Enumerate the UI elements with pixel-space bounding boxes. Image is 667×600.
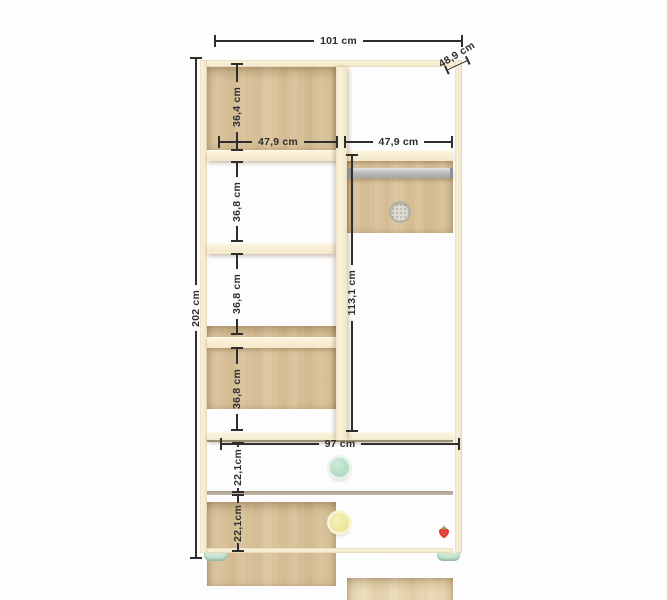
dim-tick [458,438,460,450]
shelf-middle [207,243,336,254]
hanging-rail [348,168,453,178]
drawer-knob-bottom [330,513,349,532]
dim-line [304,141,336,143]
dim-drawer-width: 97 cm [220,438,460,450]
compartment-shelf-2 [207,502,336,586]
dim-line [195,59,197,285]
carcass-right-edge [455,60,462,553]
dim-overall-width: 101 cm [214,35,463,47]
dim-line [424,141,451,143]
dim-left-compartment-width: 47,9 cm [218,136,338,148]
dim-tick [231,333,243,335]
dim-label-top-compartment: 36,4 cm [232,82,243,132]
dim-line [236,226,238,240]
dim-label-top-drawer: 22,1cm [233,447,244,488]
dim-line [236,65,238,82]
dim-line [361,443,458,445]
dim-line [236,349,238,364]
dim-tick [232,491,244,493]
dim-label-shelf-spacing-1: 36,8 cm [232,177,243,227]
dim-hanging-height: 113,1 cm [346,154,358,432]
dim-line [195,331,197,557]
wardrobe-dimension-diagram: 101 cm 48,9 cm 202 cm 36,4 cm 47,9 cm 47… [0,0,667,600]
dim-line [236,414,238,429]
dim-line [236,163,238,177]
dim-tick [465,56,471,65]
shelf-lower [207,337,336,348]
dim-line [236,319,238,333]
dim-tick [346,430,358,432]
dim-bottom-drawer-height: 22,1cm [232,494,244,552]
dim-label-left-compartment: 47,9 cm [252,137,304,148]
shelf-top [207,150,453,161]
dim-line [236,255,238,269]
dim-line [363,40,461,42]
dim-tick [231,429,243,431]
dim-label-overall-width: 101 cm [314,36,363,47]
dim-tick [232,550,244,552]
rail-end-cap-right [450,168,453,178]
dim-shelf-spacing-3: 36,8 cm [231,347,243,431]
dim-overall-height: 202 cm [190,57,202,559]
dim-top-drawer-height: 22,1cm [232,442,244,493]
dim-label-hanging-height: 113,1 cm [347,265,358,320]
dim-label-shelf-spacing-2: 36,8 cm [232,269,243,319]
dim-label-overall-height: 202 cm [191,285,202,332]
dim-shelf-spacing-2: 36,8 cm [231,253,243,335]
dim-label-right-compartment: 47,9 cm [373,137,425,148]
dim-tick [190,557,202,559]
dim-tick [336,136,338,148]
dim-line [351,156,353,265]
dim-label-bottom-drawer: 22,1cm [233,503,244,544]
furniture-foot-right [437,553,460,561]
dim-right-compartment-width: 47,9 cm [344,136,453,148]
dim-label-shelf-spacing-3: 36,8 cm [232,364,243,414]
dim-line [237,543,239,550]
dim-tick [231,240,243,242]
hanging-compartment [347,578,453,600]
dim-line [351,321,353,430]
dim-tick [451,136,453,148]
dim-line [220,141,252,143]
dim-tick [231,149,243,151]
dim-line [216,40,314,42]
dim-label-drawer-width: 97 cm [319,439,362,450]
grommet-hole [389,201,411,223]
dim-shelf-spacing-1: 36,8 cm [231,161,243,242]
dim-line [237,496,239,503]
furniture-foot-left [204,553,227,561]
drawer-knob-top [330,458,349,477]
dim-line [346,141,373,143]
strawberry-logo-icon [438,525,450,539]
